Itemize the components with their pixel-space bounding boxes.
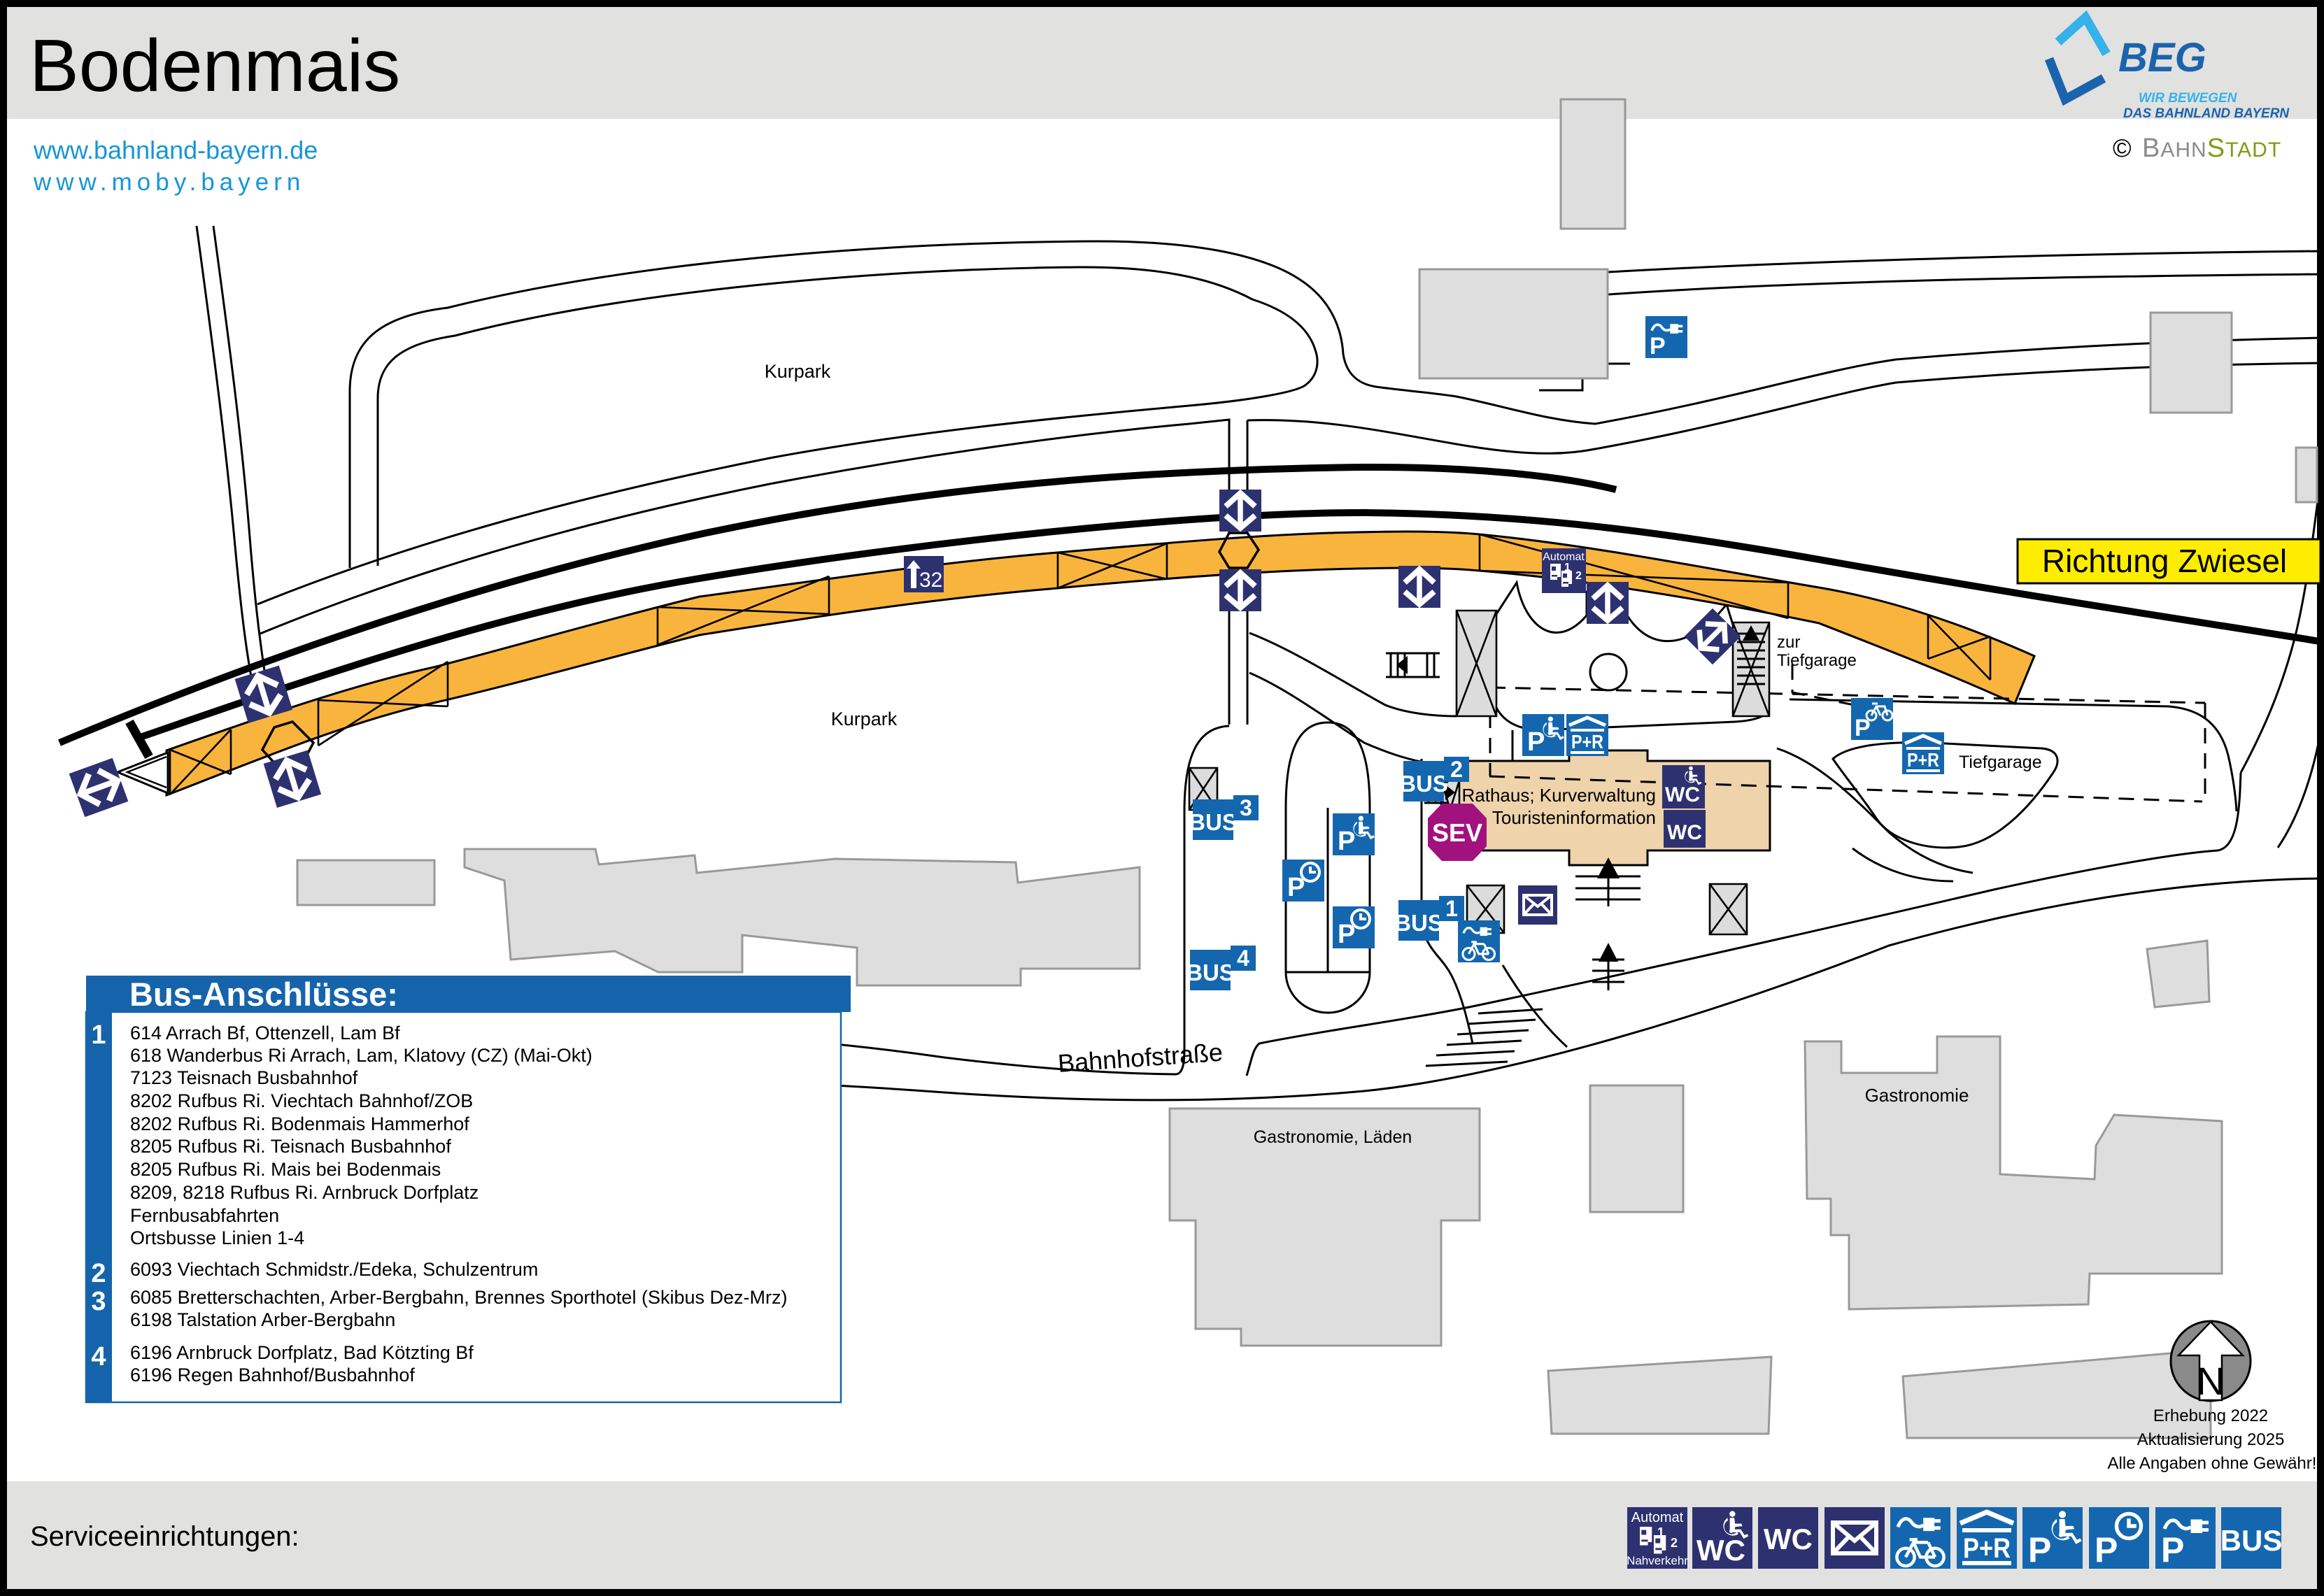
svg-text:WC: WC bbox=[1696, 1534, 1745, 1567]
svg-text:Tiefgarage: Tiefgarage bbox=[1959, 753, 2042, 772]
svg-text:2: 2 bbox=[1671, 1536, 1678, 1550]
svg-text:8209, 8218 Rufbus Ri. Arnbruck: 8209, 8218 Rufbus Ri. Arnbruck Dorfplatz bbox=[130, 1182, 479, 1203]
svg-text:Tiefgarage: Tiefgarage bbox=[1777, 651, 1857, 670]
svg-text:2: 2 bbox=[1575, 570, 1582, 582]
svg-text:Nahverkehr: Nahverkehr bbox=[1627, 1554, 1688, 1567]
svg-text:Rathaus; Kurverwaltung: Rathaus; Kurverwaltung bbox=[1462, 785, 1656, 806]
svg-text:3: 3 bbox=[1240, 795, 1252, 820]
svg-text:Richtung Zwiesel: Richtung Zwiesel bbox=[2042, 543, 2287, 579]
svg-text:P: P bbox=[2095, 1530, 2118, 1569]
svg-text:BEG: BEG bbox=[2118, 35, 2206, 80]
svg-text:Touristeninformation: Touristeninformation bbox=[1492, 807, 1656, 828]
svg-text:4: 4 bbox=[1237, 946, 1249, 971]
svg-text:618 Wanderbus Ri Arrach, Lam,: 618 Wanderbus Ri Arrach, Lam, Klatovy (C… bbox=[130, 1045, 593, 1066]
svg-text:zur: zur bbox=[1777, 633, 1800, 652]
svg-text:©: © bbox=[2113, 134, 2132, 162]
svg-text:Kurpark: Kurpark bbox=[765, 361, 831, 382]
svg-text:Automat: Automat bbox=[1631, 1510, 1684, 1525]
svg-text:www.bahnland-bayern.de: www.bahnland-bayern.de bbox=[33, 136, 318, 164]
svg-text:8202 Rufbus Ri. Viechtach Bahn: 8202 Rufbus Ri. Viechtach Bahnhof/ZOB bbox=[130, 1090, 473, 1111]
svg-text:BAHNSTADT: BAHNSTADT bbox=[2142, 134, 2281, 163]
svg-text:P: P bbox=[2161, 1530, 2184, 1569]
svg-text:P+R: P+R bbox=[1963, 1533, 2011, 1564]
svg-text:8205 Rufbus Ri. Teisnach Busba: 8205 Rufbus Ri. Teisnach Busbahnhof bbox=[130, 1136, 451, 1157]
svg-text:WC: WC bbox=[1764, 1523, 1813, 1555]
svg-text:32: 32 bbox=[919, 569, 942, 592]
svg-text:P: P bbox=[1650, 333, 1666, 359]
svg-text:SEV: SEV bbox=[1432, 818, 1482, 847]
svg-text:Erhebung 2022: Erhebung 2022 bbox=[2153, 1406, 2268, 1425]
svg-text:DAS BAHNLAND BAYERN: DAS BAHNLAND BAYERN bbox=[2123, 106, 2290, 121]
svg-text:Ortsbusse Linien 1-4: Ortsbusse Linien 1-4 bbox=[130, 1227, 304, 1248]
svg-text:Serviceeinrichtungen:: Serviceeinrichtungen: bbox=[30, 1521, 299, 1552]
svg-text:Bus-Anschlüsse:: Bus-Anschlüsse: bbox=[129, 976, 398, 1013]
svg-text:P: P bbox=[2028, 1530, 2051, 1569]
svg-text:8202 Rufbus Ri. Bodenmais Hamm: 8202 Rufbus Ri. Bodenmais Hammerhof bbox=[130, 1113, 469, 1134]
svg-text:N: N bbox=[2197, 1359, 2225, 1403]
svg-text:4: 4 bbox=[91, 1342, 106, 1371]
svg-text:Gastronomie, Läden: Gastronomie, Läden bbox=[1254, 1127, 1412, 1147]
svg-text:BUS: BUS bbox=[2220, 1524, 2283, 1557]
svg-text:www.moby.bayern: www.moby.bayern bbox=[33, 169, 305, 196]
svg-text:1: 1 bbox=[91, 1020, 106, 1050]
svg-text:614 Arrach Bf, Ottenzell, Lam: 614 Arrach Bf, Ottenzell, Lam Bf bbox=[130, 1023, 400, 1043]
svg-text:Gastronomie: Gastronomie bbox=[1865, 1085, 1969, 1106]
svg-text:6093 Viechtach Schmidstr./Edek: 6093 Viechtach Schmidstr./Edeka, Schulze… bbox=[130, 1259, 538, 1280]
svg-text:6085 Bretterschachten, Arber-B: 6085 Bretterschachten, Arber-Bergbahn, B… bbox=[130, 1287, 787, 1308]
svg-text:Aktualisierung 2025: Aktualisierung 2025 bbox=[2137, 1430, 2285, 1449]
svg-text:8205 Rufbus Ri. Mais bei Boden: 8205 Rufbus Ri. Mais bei Bodenmais bbox=[130, 1159, 441, 1180]
svg-text:6196 Arnbruck Dorfplatz, Bad K: 6196 Arnbruck Dorfplatz, Bad Kötzting Bf bbox=[130, 1342, 474, 1363]
svg-text:WIR BEWEGEN: WIR BEWEGEN bbox=[2139, 91, 2238, 106]
svg-text:7123 Teisnach Busbahnhof: 7123 Teisnach Busbahnhof bbox=[130, 1067, 358, 1088]
svg-text:Fernbusabfahrten: Fernbusabfahrten bbox=[130, 1205, 279, 1226]
svg-text:Bodenmais: Bodenmais bbox=[29, 24, 400, 107]
svg-text:Alle Angaben ohne Gewähr!: Alle Angaben ohne Gewähr! bbox=[2108, 1454, 2317, 1473]
svg-text:3: 3 bbox=[91, 1287, 106, 1316]
svg-text:6198 Talstation Arber-Bergbahn: 6198 Talstation Arber-Bergbahn bbox=[130, 1309, 395, 1330]
svg-text:6196 Regen Bahnhof/Busbahnhof: 6196 Regen Bahnhof/Busbahnhof bbox=[130, 1365, 415, 1385]
svg-text:Kurpark: Kurpark bbox=[831, 708, 898, 729]
svg-text:2: 2 bbox=[91, 1259, 106, 1288]
svg-text:2: 2 bbox=[1450, 757, 1463, 782]
svg-text:1: 1 bbox=[1445, 896, 1458, 921]
svg-text:WC: WC bbox=[1665, 783, 1700, 806]
